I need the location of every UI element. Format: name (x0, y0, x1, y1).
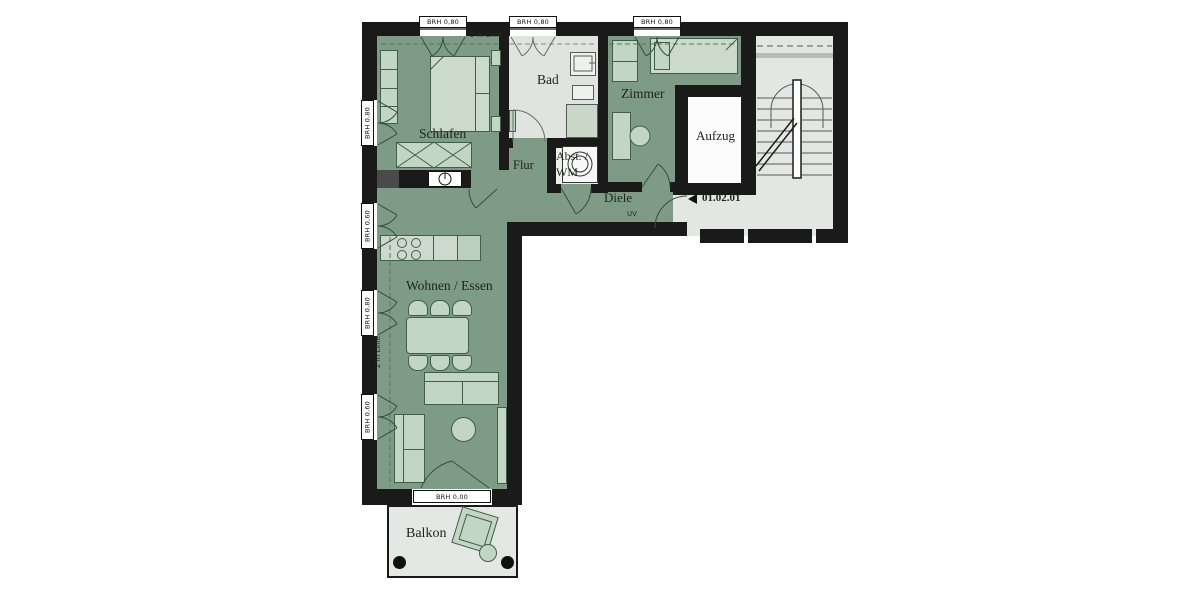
sofa-seat-divider (462, 381, 463, 404)
sideboard-icon (497, 407, 507, 484)
room-label-flur: Flur (513, 158, 534, 173)
shelf-icon (612, 40, 638, 82)
stairwell-floor (756, 36, 833, 236)
window-sill-label: BRH 0,60 (361, 203, 374, 249)
room-label-balkon: Balkon (406, 526, 446, 542)
window-sill-label: BRH 0,80 (361, 290, 374, 336)
balcony-post-icon (501, 556, 514, 569)
dining-table-icon (406, 317, 469, 354)
wall-wm-bottom-left (547, 184, 561, 193)
counter-appliance (458, 236, 480, 260)
wall-under-diele (507, 222, 687, 236)
room-label-aufzug: Aufzug (696, 128, 735, 144)
chair-icon (430, 355, 450, 371)
nightstand-icon (491, 116, 501, 132)
pillow-icon (654, 42, 670, 70)
room-label-bad: Bad (537, 72, 559, 88)
toilet-icon (572, 85, 594, 100)
window-glass-line (420, 28, 466, 30)
desk-icon (612, 112, 631, 160)
wall-bad-bottom-left (499, 138, 513, 148)
room-label-schlafen: Schlafen (419, 126, 466, 142)
radiator-icon (509, 110, 516, 132)
chair-icon (452, 355, 472, 371)
chair-icon (430, 300, 450, 316)
counter-divider (433, 236, 434, 260)
wall-right-wohnen (507, 222, 522, 505)
window-sill-label: BRH 0,80 (633, 16, 681, 28)
kitchen-counter-icon (380, 235, 481, 261)
wardrobe-divider (381, 106, 397, 107)
balcony-door-sill-label: BRH 0,00 (413, 490, 491, 503)
wardrobe-icon (380, 50, 398, 124)
chair-icon (408, 355, 428, 371)
room-label-abstellraum-1: Abst. / (556, 149, 588, 164)
wall-aufzug-left (675, 85, 688, 195)
chair-icon (452, 300, 472, 316)
double-bed-icon (430, 56, 490, 132)
kitchen-duct-block (377, 170, 399, 188)
wall-landing-bottom-2 (748, 229, 812, 243)
oven-icon (428, 171, 462, 187)
window-sill-label: BRH 0,60 (361, 394, 374, 440)
sofa-icon (424, 372, 499, 405)
coffee-table-icon (451, 417, 476, 442)
room-label-wohnen-essen: Wohnen / Essen (406, 278, 493, 294)
chair-icon (408, 300, 428, 316)
sofa-seat-divider (403, 449, 424, 450)
chaise-sofa-icon (394, 414, 425, 483)
uv-label: UV (627, 210, 637, 218)
balcony-post-icon (393, 556, 406, 569)
wardrobe-divider (381, 88, 397, 89)
window-sill-label: BRH 0,80 (361, 100, 374, 146)
wall-stairwell-right (833, 22, 848, 236)
wall-landing-bottom-3 (816, 229, 848, 243)
floor-plan: BRH 0,80 BRH 0,80 BRH 0,80 BRH 0,80 BRH … (0, 0, 1200, 600)
unit-number-label: 01.02.01 (702, 192, 741, 204)
two-m-line-label-top: 2 m Linie (470, 31, 502, 39)
stool-icon (479, 544, 497, 562)
window-glass-line (634, 28, 680, 30)
bed-divider (475, 57, 476, 131)
room-label-zimmer: Zimmer (621, 86, 665, 102)
room-label-diele: Diele (604, 190, 632, 206)
stairwell-window-band (756, 53, 833, 58)
wardrobe-divider (381, 69, 397, 70)
room-label-abstellraum-2: WM (556, 165, 578, 180)
entry-doorway-floor (673, 195, 687, 222)
bed-divider (475, 93, 489, 94)
wall-bad-right (598, 36, 608, 192)
wall-landing-bottom-1 (700, 229, 744, 243)
window-sill-label: BRH 0,80 (419, 16, 467, 28)
shelf-divider (613, 61, 637, 62)
balcony-table-inner (458, 514, 492, 548)
nightstand-icon (491, 50, 501, 66)
shower-icon (566, 104, 598, 138)
two-m-line-label-left: 2 m Linie (374, 336, 382, 368)
window-sill-label: BRH 0,80 (509, 16, 557, 28)
entry-arrow-icon (688, 194, 697, 204)
wall-stairwell-left (741, 22, 756, 195)
washbasin-icon (570, 52, 596, 76)
crossed-wardrobe-icon (396, 142, 472, 168)
window-glass-line (510, 28, 556, 30)
